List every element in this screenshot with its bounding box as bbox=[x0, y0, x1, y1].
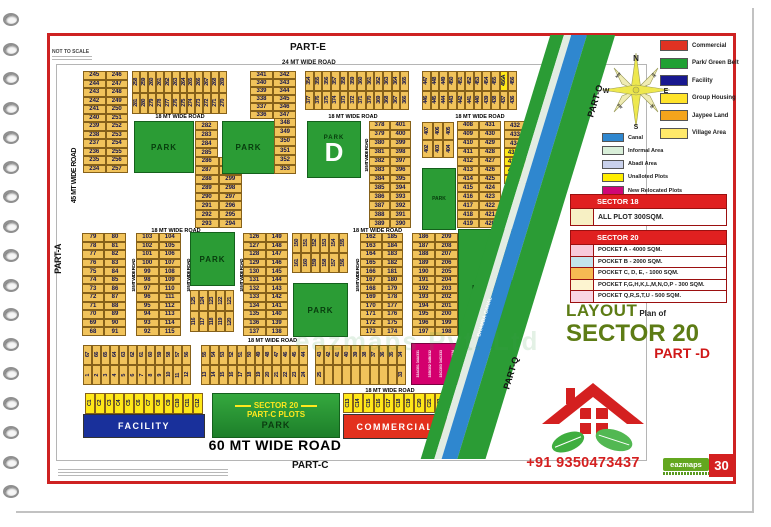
legend-zones: CommercialPark/ Green BeltFacilityGroup … bbox=[660, 40, 740, 145]
legend-label: Canal bbox=[628, 135, 643, 141]
brand-tagline bbox=[663, 472, 709, 475]
sector-row-swatch bbox=[571, 268, 594, 279]
legend-swatch bbox=[660, 40, 688, 51]
title-plan-of: Plan of bbox=[639, 309, 666, 318]
map-label-part-c: PART-C bbox=[292, 460, 328, 471]
sector-row-label: POCKET A - 4000 SQM. bbox=[594, 245, 726, 256]
sector20-header: SECTOR 20 bbox=[571, 231, 726, 245]
legend-label: Abadi Area bbox=[628, 161, 657, 167]
legend-label: Facility bbox=[692, 78, 713, 84]
sector-row-label: POCKET F,G,H,K,L,M,N,O,P - 300 SQM. bbox=[594, 280, 726, 291]
binding-hole bbox=[3, 102, 19, 115]
layout-title: LAYOUTPlan of SECTOR 20 PART -D bbox=[566, 301, 716, 361]
page-edge-bottom bbox=[16, 511, 754, 513]
compass-w-label: W bbox=[603, 88, 610, 95]
brand-logo: eazmaps bbox=[663, 458, 709, 471]
legend-item: Group Housing bbox=[660, 93, 740, 104]
sector-row-label: ALL PLOT 300SQM. bbox=[594, 209, 726, 225]
sector-row-swatch bbox=[571, 209, 594, 225]
legend-label: Informal Area bbox=[628, 148, 663, 154]
legend-label: Jaypee Land bbox=[692, 113, 728, 119]
sector-row-label: POCKET C, D, E, - 1000 SQM. bbox=[594, 268, 726, 279]
sector-row-label: POCKET B - 2000 SQM. bbox=[594, 257, 726, 268]
legend-item: Abadi Area bbox=[602, 160, 697, 169]
legend-item: Unalloted Plots bbox=[602, 173, 697, 182]
house-logo bbox=[538, 378, 648, 456]
binding-hole bbox=[3, 43, 19, 56]
legend-swatch bbox=[660, 75, 688, 86]
legend-label: Park/ Green Belt bbox=[692, 60, 739, 66]
sector-row-label: POCKET Q,R,S,T,U - 500 SQM. bbox=[594, 291, 726, 302]
legend-swatch bbox=[602, 146, 624, 155]
binding-hole bbox=[3, 131, 19, 144]
compass-s-label: S bbox=[634, 124, 639, 130]
scale-note-fineprint bbox=[52, 56, 92, 60]
binding-hole bbox=[3, 190, 19, 203]
binding-hole bbox=[3, 220, 19, 233]
compass-n-label: N bbox=[633, 54, 639, 63]
legend-label: Unalloted Plots bbox=[628, 174, 668, 180]
sector20-table: SECTOR 20 POCKET A - 4000 SQM.POCKET B -… bbox=[570, 230, 727, 303]
legend-overlay: CanalInformal AreaAbadi AreaUnalloted Pl… bbox=[602, 133, 697, 199]
legend-item: Informal Area bbox=[602, 146, 697, 155]
sector-row-swatch bbox=[571, 245, 594, 256]
sector-row-swatch bbox=[571, 280, 594, 291]
binding-hole bbox=[3, 367, 19, 380]
binding-hole bbox=[3, 279, 19, 292]
binding-hole bbox=[3, 13, 19, 26]
title-part: PART -D bbox=[566, 346, 710, 361]
legend-item: Jaypee Land bbox=[660, 110, 740, 121]
title-layout: LAYOUT bbox=[566, 301, 637, 320]
scanned-map-page: { "page": {"number": "30", "phone": "+91… bbox=[0, 0, 771, 527]
brand-text: eazmaps bbox=[670, 460, 702, 469]
sector-row: POCKET C, D, E, - 1000 SQM. bbox=[571, 268, 726, 280]
legend-swatch bbox=[602, 133, 624, 142]
compass-center bbox=[633, 87, 639, 93]
legend-item: Canal bbox=[602, 133, 697, 142]
sector-row-swatch bbox=[571, 257, 594, 268]
disclaimer-fineprint bbox=[58, 469, 228, 478]
binding-hole bbox=[3, 72, 19, 85]
sector18-header: SECTOR 18 bbox=[571, 195, 726, 209]
legend-label: Commercial bbox=[692, 43, 726, 49]
binding-hole bbox=[3, 485, 19, 498]
legend-item: Facility bbox=[660, 75, 740, 86]
legend-swatch bbox=[660, 58, 688, 69]
binding-hole bbox=[3, 249, 19, 262]
title-sector: SECTOR 20 bbox=[566, 322, 716, 346]
binding-hole bbox=[3, 308, 19, 321]
sector18-table: SECTOR 18 ALL PLOT 300SQM. bbox=[570, 194, 727, 226]
binding-hole bbox=[3, 426, 19, 439]
binding-hole bbox=[3, 456, 19, 469]
legend-swatch bbox=[660, 110, 688, 121]
legend-item: Park/ Green Belt bbox=[660, 58, 740, 69]
binding-hole bbox=[3, 397, 19, 410]
legend-label: Group Housing bbox=[692, 95, 736, 101]
phone-number: +91 9350473437 bbox=[512, 455, 654, 471]
page-edge-right bbox=[752, 8, 754, 512]
sector-row: ALL PLOT 300SQM. bbox=[571, 209, 726, 225]
page-number: 30 bbox=[709, 454, 734, 477]
binding-hole bbox=[3, 338, 19, 351]
legend-label: New Relocated Plots bbox=[628, 188, 682, 194]
sector-row: POCKET Q,R,S,T,U - 500 SQM. bbox=[571, 291, 726, 302]
legend-swatch bbox=[660, 93, 688, 104]
binding-hole bbox=[3, 161, 19, 174]
legend-label: Village Area bbox=[692, 130, 726, 136]
legend-swatch bbox=[602, 173, 624, 182]
sector-row: POCKET B - 2000 SQM. bbox=[571, 257, 726, 269]
sector-row: POCKET F,G,H,K,L,M,N,O,P - 300 SQM. bbox=[571, 280, 726, 292]
compass-sw-label: SW bbox=[616, 103, 623, 110]
sector-row-swatch bbox=[571, 291, 594, 302]
legend-swatch bbox=[602, 160, 624, 169]
sector-row: POCKET A - 4000 SQM. bbox=[571, 245, 726, 257]
legend-item: Commercial bbox=[660, 40, 740, 51]
